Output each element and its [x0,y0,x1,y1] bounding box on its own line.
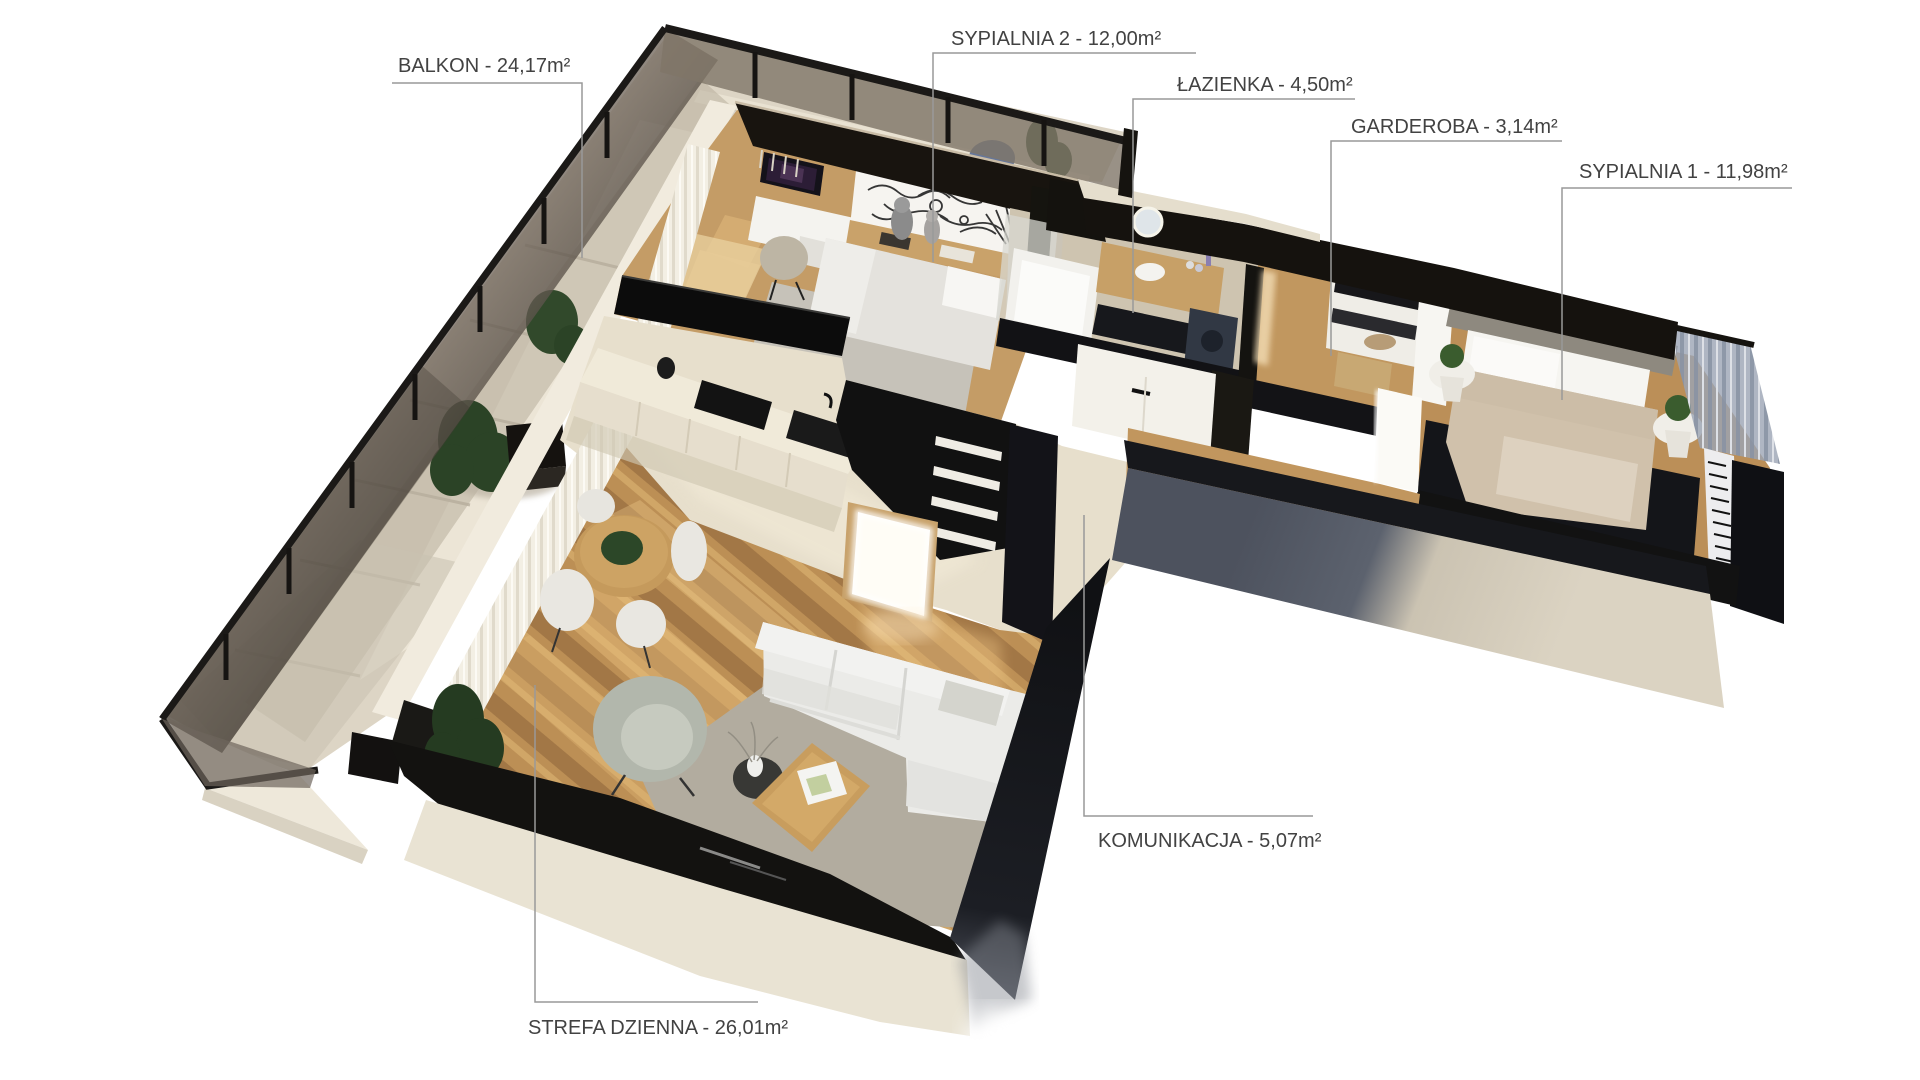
svg-text:SYPIALNIA 1 - 11,98m²: SYPIALNIA 1 - 11,98m² [1579,161,1788,183]
svg-text:KOMUNIKACJA - 5,07m²: KOMUNIKACJA - 5,07m² [1098,830,1322,852]
svg-text:STREFA DZIENNA - 26,01m²: STREFA DZIENNA - 26,01m² [528,1017,788,1039]
svg-text:ŁAZIENKA - 4,50m²: ŁAZIENKA - 4,50m² [1177,74,1353,96]
svg-text:BALKON - 24,17m²: BALKON - 24,17m² [398,55,571,77]
svg-text:SYPIALNIA 2 - 12,00m²: SYPIALNIA 2 - 12,00m² [951,28,1161,50]
svg-text:GARDEROBA - 3,14m²: GARDEROBA - 3,14m² [1351,116,1558,138]
